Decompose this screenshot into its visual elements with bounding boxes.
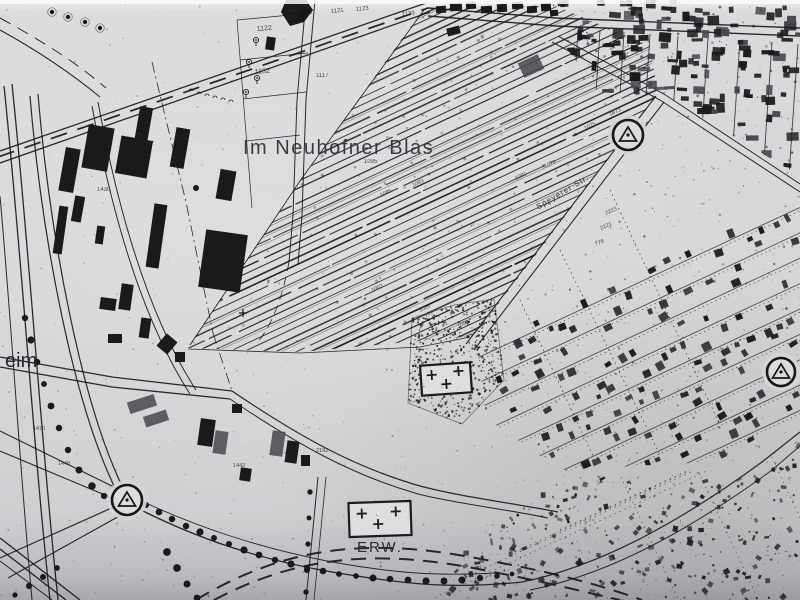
field-speck [531, 247, 532, 248]
field-speck [481, 35, 483, 37]
noise-speck [2, 345, 4, 347]
speck [578, 558, 581, 561]
field-speck [530, 116, 531, 117]
noise-speck [399, 199, 401, 201]
house [644, 432, 652, 439]
noise-speck [696, 391, 698, 393]
road [0, 18, 106, 88]
speck [726, 453, 728, 455]
field-speck [469, 290, 470, 291]
noise-speck [43, 536, 44, 537]
stipple-dot [463, 352, 465, 354]
small-house [603, 503, 609, 509]
noise-speck [476, 24, 477, 25]
noise-speck [207, 595, 209, 597]
stipple-dot [480, 364, 481, 365]
noise-speck [233, 431, 234, 432]
house [627, 427, 637, 436]
stipple-dot [457, 402, 459, 404]
stipple-dot [487, 337, 488, 338]
speck [627, 49, 628, 50]
noise-speck [671, 399, 672, 400]
noise-speck [247, 310, 248, 311]
noise-speck [480, 200, 481, 201]
noise-speck [370, 166, 372, 168]
road [152, 62, 213, 333]
noise-speck [361, 567, 362, 568]
speck [705, 301, 706, 302]
field-speck [422, 17, 423, 18]
noise-speck [700, 203, 702, 205]
parcel-number: 1442 [233, 463, 245, 469]
noise-speck [604, 517, 606, 519]
building [527, 6, 537, 14]
noise-speck [784, 19, 785, 20]
field-speck [567, 164, 569, 166]
field-speck [359, 175, 360, 176]
noise-speck [117, 372, 118, 373]
building [729, 7, 734, 13]
small-house [795, 442, 800, 449]
noise-speck [259, 320, 261, 322]
cross-street-dots [560, 250, 660, 455]
noise-speck [341, 358, 342, 359]
noise-speck [791, 174, 792, 175]
noise-speck [775, 297, 777, 299]
noise-speck [798, 312, 799, 313]
noise-speck [537, 480, 538, 481]
house [569, 325, 578, 334]
speck [674, 584, 677, 587]
stipple-dot [484, 316, 487, 319]
stipple-dot [414, 360, 415, 361]
noise-speck [794, 93, 795, 94]
stipple-dot [438, 405, 440, 407]
stipple-dot [409, 372, 411, 374]
strip-line [15, 0, 800, 235]
small-house [645, 567, 650, 572]
speck [798, 195, 800, 197]
noise-speck [332, 258, 333, 259]
noise-speck [545, 48, 546, 49]
speck [594, 26, 595, 27]
building [58, 147, 80, 193]
noise-speck [163, 82, 164, 83]
building [134, 106, 153, 145]
noise-speck [517, 564, 519, 566]
field-speck [354, 166, 356, 168]
speck [691, 295, 692, 296]
noise-speck [393, 290, 394, 291]
speck [786, 30, 789, 33]
stipple-dot [488, 343, 489, 344]
noise-speck [573, 541, 574, 542]
building [667, 28, 671, 32]
small-house [750, 492, 754, 498]
speck [597, 527, 599, 529]
noise-speck [431, 477, 432, 478]
speck [587, 42, 590, 45]
noise-speck [490, 364, 491, 365]
noise-speck [122, 167, 123, 168]
speck [784, 432, 786, 434]
speck [713, 569, 716, 572]
noise-speck [410, 251, 411, 252]
noise-speck [456, 450, 458, 452]
noise-speck [479, 130, 481, 132]
speck [555, 321, 556, 322]
speck [634, 76, 636, 78]
noise-speck [446, 156, 447, 157]
speck [731, 120, 732, 121]
stipple-dot [438, 316, 439, 317]
small-house [516, 568, 522, 575]
noise-speck [772, 253, 774, 255]
road [0, 549, 66, 600]
noise-speck [736, 436, 738, 438]
noise-speck [330, 520, 332, 522]
noise-speck [122, 37, 124, 39]
stipple-dot [500, 358, 502, 360]
stipple-dot [431, 327, 433, 329]
noise-speck [446, 572, 448, 574]
noise-speck [92, 494, 93, 495]
noise-speck [563, 484, 565, 486]
noise-speck [446, 48, 447, 49]
house [586, 424, 591, 430]
small-house [545, 505, 549, 508]
speck [646, 122, 648, 124]
noise-speck [780, 216, 782, 218]
strip-line [69, 0, 800, 349]
noise-speck [713, 502, 715, 504]
speck [738, 53, 740, 55]
noise-speck [381, 435, 382, 436]
noise-speck [756, 125, 758, 127]
noise-speck [8, 391, 10, 393]
stipple-dot [414, 389, 416, 391]
stipple-dot [443, 334, 445, 336]
stipple-dot [452, 312, 454, 314]
stipple-dot [483, 311, 485, 313]
stipple-dot [450, 395, 452, 397]
speck [672, 449, 673, 450]
noise-speck [738, 76, 740, 78]
noise-speck [566, 514, 568, 516]
noise-speck [639, 353, 640, 354]
speck [577, 394, 578, 395]
small-house [779, 498, 783, 503]
noise-speck [559, 553, 561, 555]
stipple-dot [495, 372, 497, 374]
noise-speck [661, 421, 662, 422]
building [692, 38, 703, 41]
speck [590, 376, 591, 377]
noise-speck [534, 341, 536, 343]
noise-speck [643, 571, 645, 573]
building [212, 430, 228, 455]
building [702, 64, 709, 68]
field-speck [385, 296, 387, 298]
field-speck [464, 158, 466, 160]
tree-dot [303, 589, 308, 594]
stipple-dot [419, 341, 421, 343]
speck [789, 271, 791, 273]
noise-speck [201, 164, 202, 165]
house [499, 386, 509, 395]
noise-speck [94, 592, 96, 594]
noise-speck [405, 467, 406, 468]
small-house [653, 520, 658, 525]
noise-speck [578, 549, 580, 551]
noise-speck [245, 573, 247, 575]
noise-speck [480, 65, 482, 67]
noise-speck [152, 323, 153, 324]
small-house [632, 529, 638, 535]
speck [666, 16, 669, 19]
noise-speck [556, 401, 558, 403]
speck [671, 549, 674, 552]
noise-speck [744, 168, 746, 170]
stipple-dot [430, 324, 432, 326]
noise-speck [412, 371, 414, 373]
stipple-dot [456, 338, 458, 340]
noise-speck [312, 415, 314, 417]
noise-speck [442, 398, 443, 399]
field-speck [459, 118, 460, 119]
noise-speck [44, 585, 46, 587]
house [738, 366, 746, 375]
noise-speck [106, 28, 108, 30]
stipple-dot [488, 362, 490, 364]
noise-speck [314, 313, 315, 314]
noise-speck [670, 590, 671, 591]
speck [717, 150, 718, 151]
noise-speck [195, 492, 197, 494]
speck [769, 535, 771, 537]
field-speck [610, 96, 612, 98]
small-house [583, 528, 589, 534]
noise-speck [425, 166, 427, 168]
speck [677, 424, 679, 426]
building [772, 111, 781, 118]
speck [592, 61, 595, 64]
noise-speck [236, 370, 238, 372]
field-speck [434, 227, 436, 229]
noise-speck [319, 428, 321, 430]
noise-speck [537, 177, 538, 178]
house [749, 397, 757, 403]
stipple-dot [481, 324, 483, 326]
noise-speck [522, 479, 524, 481]
speck [743, 269, 745, 271]
speck [500, 545, 502, 547]
stipple-dot [493, 367, 495, 369]
noise-speck [701, 163, 702, 164]
stipple-dot [478, 365, 481, 368]
house [677, 319, 685, 326]
stipple-dot [461, 407, 463, 409]
street-dots [503, 282, 800, 502]
tree-dot [458, 576, 465, 583]
noise-speck [797, 354, 798, 355]
noise-speck [686, 394, 688, 396]
building [518, 54, 545, 78]
noise-speck [541, 359, 542, 360]
stipple-dot [470, 397, 472, 399]
speck [788, 159, 790, 161]
noise-speck [481, 552, 482, 553]
noise-speck [599, 314, 600, 315]
building [730, 24, 738, 28]
noise-speck [569, 507, 571, 509]
noise-speck [153, 294, 155, 296]
stipple-dot [455, 309, 456, 310]
speck [704, 95, 705, 96]
speck [664, 193, 666, 195]
speck [640, 55, 643, 58]
field-speck [431, 314, 432, 315]
speck [720, 348, 722, 350]
field-speck [499, 230, 500, 231]
noise-speck [185, 474, 186, 475]
stipple-dot [440, 359, 442, 361]
noise-speck [585, 36, 586, 37]
speck [607, 288, 610, 291]
stipple-dot [459, 345, 461, 347]
noise-speck [494, 578, 496, 580]
noise-speck [441, 387, 442, 388]
field-speck [476, 84, 477, 85]
speck [597, 566, 599, 568]
noise-speck [165, 597, 166, 598]
speck [675, 176, 676, 177]
noise-speck [758, 182, 760, 184]
noise-speck [656, 312, 658, 314]
tree-dot [477, 575, 483, 581]
field-speck [468, 187, 470, 189]
small-house [636, 525, 642, 531]
noise-speck [504, 343, 506, 345]
noise-speck [280, 324, 281, 325]
noise-speck [489, 574, 491, 576]
noise-speck [568, 152, 569, 153]
noise-speck [682, 337, 684, 339]
speck [569, 289, 571, 291]
noise-speck [706, 439, 708, 441]
speck [707, 491, 708, 492]
mark [588, 551, 590, 553]
mark [573, 506, 576, 509]
noise-speck [531, 39, 533, 41]
building [738, 123, 746, 127]
street-dots [560, 319, 800, 530]
noise-speck [506, 70, 508, 72]
small-house [758, 575, 762, 580]
noise-speck [675, 336, 676, 337]
speck [663, 91, 665, 93]
stipple-dot [481, 356, 484, 359]
noise-speck [625, 309, 627, 311]
noise-speck [672, 483, 674, 485]
strip-line [10, 0, 800, 222]
noise-speck [497, 94, 499, 96]
noise-speck [617, 538, 619, 540]
stipple-dot [469, 394, 471, 396]
noise-speck [266, 392, 268, 394]
building [679, 60, 687, 68]
small-house [521, 546, 527, 551]
noise-speck [426, 427, 427, 428]
noise-speck [682, 14, 684, 16]
stipple-dot [478, 307, 479, 308]
noise-speck [783, 587, 784, 588]
noise-speck [263, 405, 265, 407]
stipple-dot [413, 343, 415, 345]
stipple-dot [419, 329, 420, 330]
stipple-dot [451, 355, 454, 358]
field-speck [537, 141, 539, 143]
stipple-dot [469, 334, 470, 335]
stipple-dot [489, 379, 490, 380]
building [216, 169, 237, 201]
noise-speck [528, 105, 529, 106]
noise-speck [287, 360, 288, 361]
building [714, 29, 721, 38]
noise-speck [631, 478, 632, 479]
building [661, 17, 670, 21]
speck [528, 509, 529, 510]
center-dot [779, 370, 782, 373]
noise-speck [477, 229, 478, 230]
speck [755, 597, 757, 599]
parcel-number: 1121 [331, 8, 345, 15]
building [777, 32, 784, 38]
noise-speck [529, 41, 531, 43]
noise-speck [353, 106, 355, 108]
field-speck [599, 76, 600, 77]
noise-speck [689, 265, 690, 266]
stipple-dot [436, 327, 438, 329]
speck [642, 410, 643, 411]
noise-speck [754, 580, 755, 581]
noise-speck [357, 563, 358, 564]
speck [674, 570, 676, 572]
small-house [514, 593, 518, 597]
stipple-dot [476, 327, 477, 328]
noise-speck [386, 349, 388, 351]
tree-dot [307, 489, 312, 494]
field-speck [389, 336, 390, 337]
noise-speck [332, 530, 333, 531]
stipple-dot [488, 315, 490, 317]
small-house [660, 537, 664, 540]
tree-dot [256, 552, 263, 559]
small-house [446, 591, 451, 596]
noise-speck [556, 517, 557, 518]
noise-speck [560, 589, 561, 590]
field-speck [350, 272, 352, 274]
tree-dot [22, 315, 28, 321]
noise-speck [55, 323, 57, 325]
small-house [688, 575, 692, 578]
field-speck [404, 321, 406, 323]
noise-speck [232, 541, 233, 542]
building [661, 43, 669, 49]
noise-speck [666, 359, 668, 361]
speck [566, 220, 567, 221]
noise-speck [444, 530, 446, 532]
